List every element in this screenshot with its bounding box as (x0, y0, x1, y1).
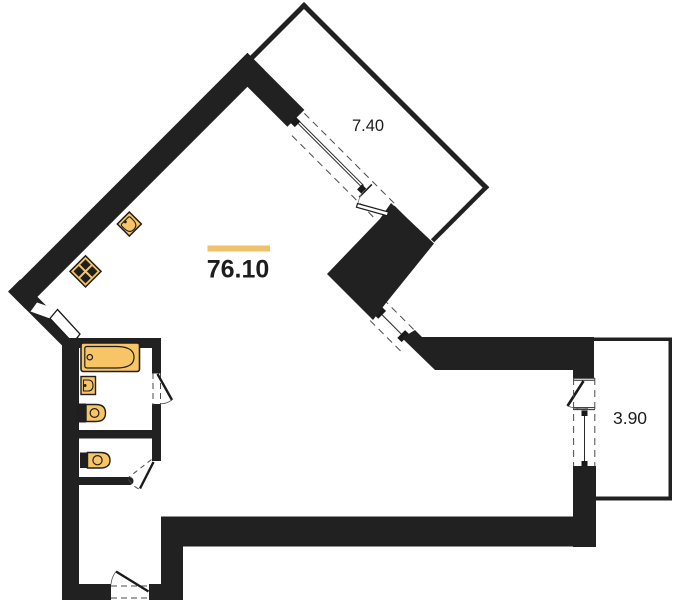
svg-text:76.10: 76.10 (207, 256, 270, 284)
svg-text:3.90: 3.90 (613, 408, 647, 428)
svg-text:7.40: 7.40 (352, 117, 384, 135)
